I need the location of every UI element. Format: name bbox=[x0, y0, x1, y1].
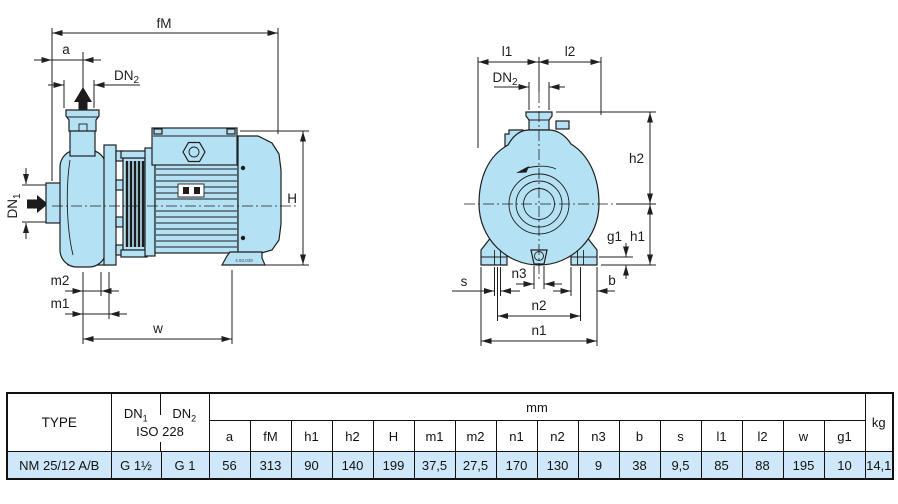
dim-header-cell: m1 bbox=[414, 421, 455, 452]
pump-front-geometry bbox=[464, 92, 614, 282]
rear-endbell bbox=[238, 136, 281, 254]
dim-header-cell: H bbox=[373, 421, 414, 452]
discharge-collar bbox=[66, 110, 99, 131]
pump-casing bbox=[60, 150, 106, 267]
svg-text:H: H bbox=[287, 191, 297, 206]
dim-header-cell: l2 bbox=[742, 421, 783, 452]
svg-text:l2: l2 bbox=[565, 44, 576, 59]
dim-b: b bbox=[553, 273, 616, 291]
flow-arrow-in-icon bbox=[27, 195, 48, 213]
dn-iso-header: DN1 DN2 ISO 228 bbox=[111, 393, 209, 452]
table-row: NM 25/12 A/B G 1½ G 1 56 313 90 140 199 … bbox=[7, 452, 893, 480]
dim-value-cell: 9 bbox=[578, 452, 619, 480]
dn2-front-label: DN2 bbox=[492, 70, 518, 88]
technical-drawing: fM a DN2 DN1 H bbox=[0, 0, 898, 380]
dim-value-cell: 195 bbox=[783, 452, 824, 480]
dim-header-cell: n3 bbox=[578, 421, 619, 452]
dn1-value-cell: G 1½ bbox=[111, 452, 161, 480]
dim-value-cell: 37,5 bbox=[414, 452, 455, 480]
dn1-column-header: DN1 bbox=[112, 406, 161, 424]
svg-text:h2: h2 bbox=[629, 151, 644, 166]
dim-value-cell: 56 bbox=[209, 452, 250, 480]
dim-value-cell: 10 bbox=[824, 452, 865, 480]
dim-s: s bbox=[452, 274, 520, 291]
top-bolt bbox=[556, 121, 569, 129]
dim-a: a bbox=[34, 42, 101, 60]
dim-H: H bbox=[287, 132, 303, 265]
type-header: TYPE bbox=[7, 393, 111, 452]
dim-value-cell: 90 bbox=[291, 452, 332, 480]
mm-header: mm bbox=[209, 393, 865, 421]
pump-datasheet: fM a DN2 DN1 H bbox=[0, 0, 898, 504]
side-view: fM a DN2 DN1 H bbox=[5, 16, 309, 344]
dim-n1: n1 bbox=[482, 323, 597, 341]
dim-header-cell: l1 bbox=[701, 421, 742, 452]
dim-n2: n2 bbox=[498, 298, 580, 316]
dim-header-cell: fM bbox=[250, 421, 291, 452]
dim-value-cell: 27,5 bbox=[455, 452, 496, 480]
dim-header-cell: s bbox=[660, 421, 701, 452]
svg-text:b: b bbox=[608, 273, 616, 288]
dim-w: w bbox=[84, 321, 232, 339]
dn2-column-header: DN2 bbox=[160, 406, 209, 424]
pump-side-geometry: 4.93.038 bbox=[46, 110, 296, 267]
discharge-pipe bbox=[70, 128, 95, 156]
iso-header: ISO 228 bbox=[112, 424, 209, 439]
dim-header-cell: n1 bbox=[496, 421, 537, 452]
part-number: 4.93.038 bbox=[235, 258, 253, 263]
svg-text:n3: n3 bbox=[511, 266, 526, 281]
front-view: l1 l2 DN2 bbox=[452, 44, 656, 346]
dn2-value-cell: G 1 bbox=[161, 452, 209, 480]
svg-text:s: s bbox=[461, 274, 468, 289]
dim-header-cell: w bbox=[783, 421, 824, 452]
svg-text:w: w bbox=[152, 321, 163, 336]
dim-g1: g1 bbox=[607, 229, 626, 279]
backplate bbox=[104, 145, 116, 265]
dim-h1: h1 bbox=[630, 205, 650, 265]
kg-value-cell: 14,1 bbox=[865, 452, 893, 480]
dim-m1: m1 bbox=[51, 296, 127, 314]
nameplate bbox=[178, 184, 204, 197]
dim-header-cell: m2 bbox=[455, 421, 496, 452]
dn2-label: DN2 bbox=[114, 68, 140, 86]
dim-value-cell: 199 bbox=[373, 452, 414, 480]
dim-value-cell: 130 bbox=[537, 452, 578, 480]
dim-header-cell: b bbox=[619, 421, 660, 452]
dim-value-cell: 170 bbox=[496, 452, 537, 480]
svg-text:m1: m1 bbox=[51, 296, 70, 311]
svg-text:m2: m2 bbox=[51, 273, 70, 288]
svg-text:a: a bbox=[62, 42, 70, 57]
motor-body bbox=[155, 163, 238, 253]
dim-header-cell: n2 bbox=[537, 421, 578, 452]
dim-value-cell: 85 bbox=[701, 452, 742, 480]
pump-type-cell: NM 25/12 A/B bbox=[7, 452, 111, 480]
svg-text:l1: l1 bbox=[502, 44, 513, 59]
hex-plug-icon bbox=[183, 143, 205, 162]
dim-n3: n3 bbox=[511, 266, 562, 284]
dim-value-cell: 38 bbox=[619, 452, 660, 480]
svg-text:fM: fM bbox=[157, 16, 172, 31]
dim-value-cell: 140 bbox=[332, 452, 373, 480]
dim-header-cell: h2 bbox=[332, 421, 373, 452]
dim-dn1: DN1 bbox=[5, 168, 26, 239]
kg-header: kg bbox=[865, 393, 893, 452]
dn1-label: DN1 bbox=[5, 193, 23, 219]
dim-header-cell: h1 bbox=[291, 421, 332, 452]
dim-value-cell: 313 bbox=[250, 452, 291, 480]
svg-text:g1: g1 bbox=[607, 229, 622, 244]
dim-fM: fM bbox=[53, 16, 278, 33]
svg-text:h1: h1 bbox=[630, 229, 645, 244]
dim-header-cell: a bbox=[209, 421, 250, 452]
svg-text:n2: n2 bbox=[531, 298, 546, 313]
dim-header-cell: g1 bbox=[824, 421, 865, 452]
dim-h2: h2 bbox=[629, 113, 650, 204]
dimensions-table: TYPE DN1 DN2 ISO 228 mm kg a fM h1 h2 H … bbox=[6, 392, 894, 480]
svg-text:n1: n1 bbox=[531, 323, 546, 338]
dim-value-cell: 88 bbox=[742, 452, 783, 480]
dim-value-cell: 9,5 bbox=[660, 452, 701, 480]
